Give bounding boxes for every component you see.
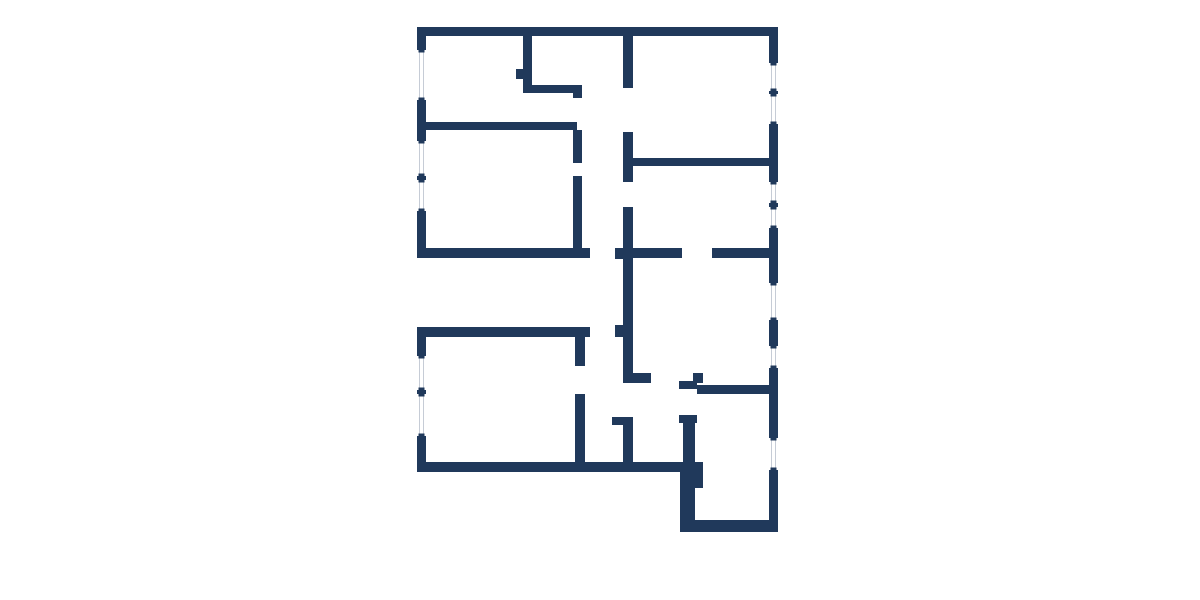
- wall-segment: [523, 85, 578, 93]
- windows-group: [417, 50, 778, 470]
- wall-segment: [523, 36, 532, 85]
- wall-segment: [417, 122, 577, 130]
- window: [769, 63, 778, 91]
- window: [769, 94, 778, 124]
- window: [417, 141, 426, 176]
- wall-segment: [683, 423, 695, 462]
- window: [417, 394, 426, 436]
- wall-segment: [417, 27, 778, 36]
- window: [417, 356, 426, 390]
- wall-segment: [623, 425, 633, 462]
- wall-segment: [417, 462, 695, 472]
- floorplan-svg: [0, 0, 1200, 600]
- wall-segment: [712, 248, 769, 258]
- wall-segment: [417, 327, 590, 337]
- wall-segment: [623, 132, 633, 166]
- wall-segment: [417, 248, 590, 258]
- wall-segment: [623, 36, 633, 88]
- wall-segment: [623, 207, 633, 258]
- wall-segment: [697, 385, 769, 394]
- wall-segment: [573, 130, 582, 163]
- wall-segment: [623, 258, 633, 373]
- wall-segment: [633, 158, 778, 166]
- wall-segment: [679, 381, 697, 389]
- window: [769, 283, 778, 320]
- window: [769, 207, 778, 228]
- wall-segment: [612, 417, 633, 425]
- walls-group: [417, 27, 778, 532]
- wall-segment: [623, 373, 651, 383]
- wall-segment: [575, 337, 585, 366]
- window: [769, 438, 778, 470]
- window: [417, 50, 426, 100]
- window: [417, 180, 426, 211]
- window: [769, 182, 778, 203]
- wall-segment: [573, 85, 582, 98]
- wall-segment: [680, 462, 695, 532]
- wall-segment: [695, 462, 703, 488]
- wall-segment: [623, 166, 633, 182]
- wall-segment: [575, 394, 585, 462]
- floorplan-canvas: [0, 0, 1200, 600]
- wall-segment: [516, 69, 523, 79]
- wall-segment: [679, 415, 697, 423]
- wall-segment: [573, 176, 582, 248]
- wall-segment: [633, 248, 682, 258]
- window: [769, 346, 778, 368]
